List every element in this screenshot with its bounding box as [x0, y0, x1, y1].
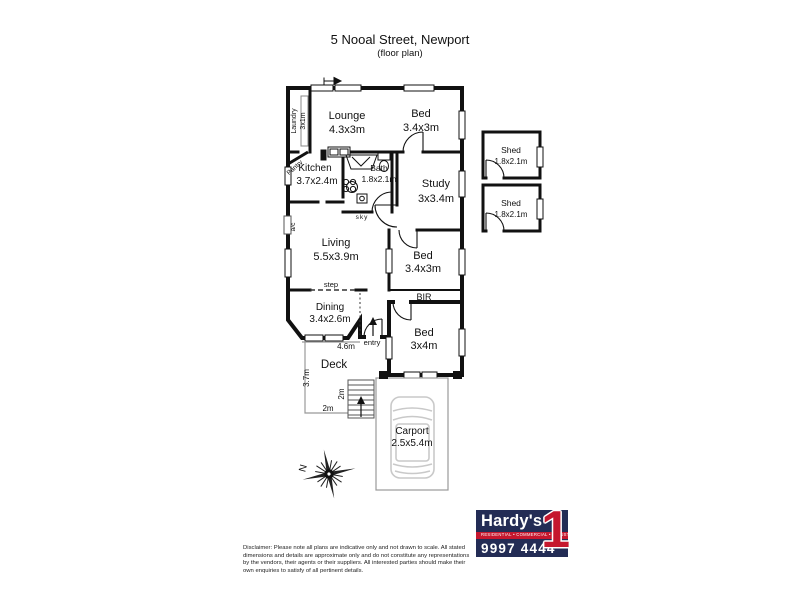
- dining-dims: 3.4x2.6m: [309, 314, 350, 325]
- bath-label: Bath: [370, 163, 388, 173]
- shed-upper-dims: 1.8x2.1m: [495, 157, 528, 166]
- step-label: step: [324, 280, 338, 289]
- living-dims: 5.5x3.9m: [313, 251, 358, 263]
- carport-label: Carport: [395, 426, 429, 437]
- carport-post-left: [379, 371, 388, 379]
- deck-length-label: 3.7m: [302, 369, 311, 387]
- agency-numeral: 1: [541, 506, 570, 555]
- kitchen-label: Kitchen: [298, 163, 331, 174]
- entry-arrowhead: [369, 317, 377, 325]
- skylight-label: sky: [356, 214, 369, 221]
- deck-width-label: 4.6m: [337, 342, 355, 351]
- north-label: N: [297, 463, 309, 473]
- shed-upper-label: Shed: [501, 145, 521, 155]
- bir-label: BIR: [416, 292, 432, 302]
- window-direction-arrow-icon: [324, 78, 341, 85]
- bed-top-dims: 3.4x3m: [403, 122, 439, 134]
- entry-label: entry: [364, 338, 381, 347]
- shed-lower-dims: 1.8x2.1m: [495, 210, 528, 219]
- study-label: Study: [422, 178, 451, 190]
- bed-top-label: Bed: [411, 108, 431, 120]
- bed-middle-dims: 3.4x3m: [405, 263, 441, 275]
- svg-text:Laundry: Laundry: [291, 108, 298, 134]
- dining-label: Dining: [316, 302, 344, 313]
- agency-logo: Hardy's RESIDENTIAL • COMMERCIAL • INDUS…: [476, 510, 568, 557]
- bed-middle-label: Bed: [413, 250, 433, 262]
- lounge-label: Lounge: [329, 110, 366, 122]
- living-label: Living: [322, 237, 351, 249]
- stair-length-label: 2m: [337, 388, 346, 399]
- bed-middle-door: [399, 230, 417, 248]
- deck-label: Deck: [321, 359, 347, 371]
- toilet-icon: [378, 153, 390, 160]
- bed-top-door: [403, 132, 423, 152]
- carport-post-right: [453, 371, 462, 379]
- study-dims: 3x3.4m: [418, 193, 454, 205]
- bed-bottom-label: Bed: [414, 327, 434, 339]
- page: 5 Nooal Street, Newport (floor plan): [0, 0, 800, 600]
- floor-plan: Lounge 4.3x3m Bed 3.4x3m Laundry 3x1m Pa…: [0, 0, 800, 600]
- deck-bottom-width-label: 2m: [322, 404, 333, 413]
- bed-bottom-dims: 3x4m: [411, 340, 438, 352]
- disclaimer-text: Disclaimer: Please note all plans are in…: [243, 545, 477, 575]
- svg-text:3x1m: 3x1m: [300, 112, 307, 129]
- air-con-label: a/c: [290, 222, 297, 231]
- lounge-dims: 4.3x3m: [329, 124, 365, 136]
- wc-icon: [357, 194, 367, 203]
- shed-lower-label: Shed: [501, 198, 521, 208]
- bath-dims: 1.8x2.1m: [362, 174, 397, 184]
- kitchen-dims: 3.7x2.4m: [296, 176, 337, 187]
- bed-bottom-door: [393, 302, 411, 320]
- carport-dims: 2.5x5.4m: [391, 438, 432, 449]
- study-door: [375, 205, 397, 227]
